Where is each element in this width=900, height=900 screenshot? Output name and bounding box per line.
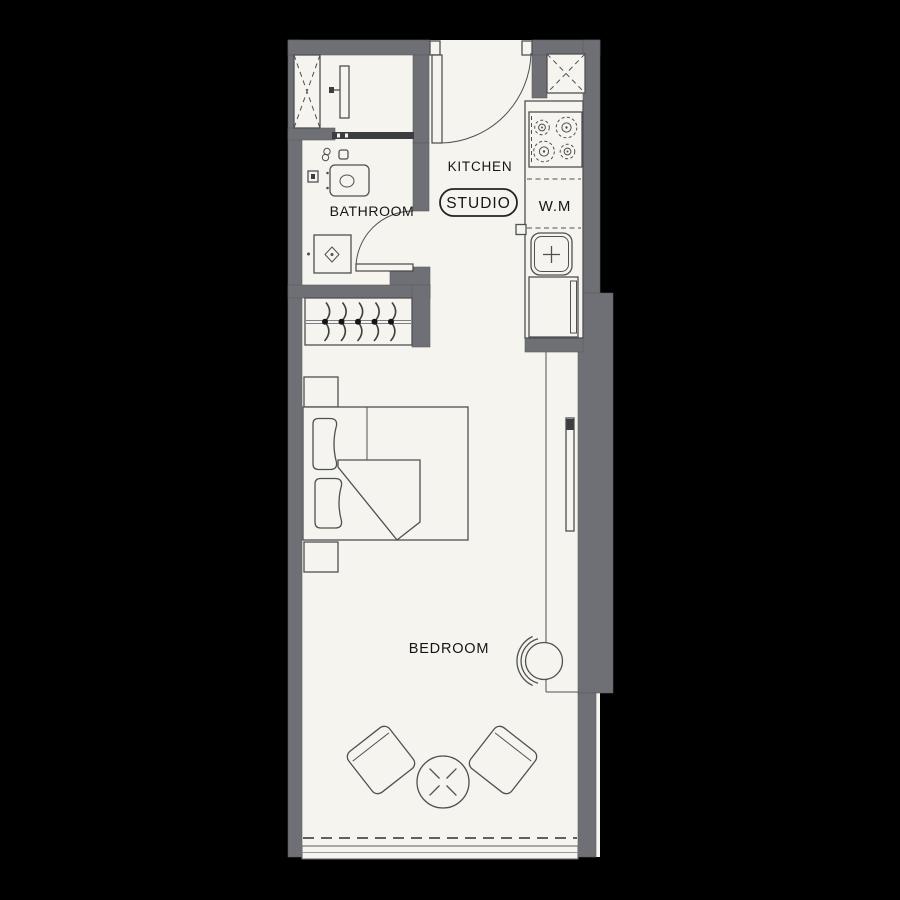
chair-seat bbox=[526, 643, 563, 680]
door-jamb-left bbox=[430, 41, 440, 55]
bedroom-label: BEDROOM bbox=[409, 641, 490, 657]
washbasin-vanity bbox=[330, 165, 369, 196]
bathroom-door-leaf bbox=[356, 264, 413, 271]
wall-kitchen-south bbox=[525, 338, 583, 352]
kitchen-counter bbox=[525, 101, 583, 338]
round-table bbox=[417, 756, 469, 808]
entry-door-leaf bbox=[432, 55, 442, 143]
wall-shaft-stub bbox=[288, 128, 335, 140]
column-post bbox=[516, 225, 526, 235]
wall-top-left bbox=[288, 40, 430, 55]
pillow bbox=[313, 418, 337, 469]
studio-label: STUDIO bbox=[446, 195, 511, 212]
wall-shower-east bbox=[413, 55, 429, 143]
wardrobe bbox=[305, 298, 412, 345]
wall-bathroom-east bbox=[413, 143, 429, 211]
washing-machine-label: W.M bbox=[539, 198, 571, 215]
duct-shaft-left bbox=[294, 55, 320, 128]
wall-entry-stub bbox=[532, 55, 547, 98]
sliding-door-track bbox=[332, 132, 414, 139]
wall-right-bottom bbox=[578, 693, 596, 857]
window-cap bbox=[567, 419, 574, 430]
wall-wardrobe-right bbox=[412, 285, 430, 347]
floor-plan: KITCHEN STUDIO BATHROOM W.M BEDROOM bbox=[0, 0, 900, 900]
door-jamb-right bbox=[522, 41, 532, 55]
nightstand bbox=[304, 377, 338, 407]
cistern-icon bbox=[339, 150, 348, 159]
pillow bbox=[315, 478, 342, 528]
wall-right-mid bbox=[578, 293, 613, 693]
floor-plan-svg: KITCHEN STUDIO BATHROOM W.M BEDROOM bbox=[0, 0, 900, 900]
nightstand bbox=[304, 542, 338, 572]
tall-window bbox=[566, 418, 574, 531]
studio-badge: STUDIO bbox=[440, 189, 517, 216]
bathroom-label: BATHROOM bbox=[330, 203, 415, 219]
kitchen-label: KITCHEN bbox=[448, 159, 513, 174]
duct-shaft-right bbox=[547, 54, 585, 93]
wall-left bbox=[288, 40, 302, 857]
wall-bathroom-south bbox=[288, 285, 430, 298]
